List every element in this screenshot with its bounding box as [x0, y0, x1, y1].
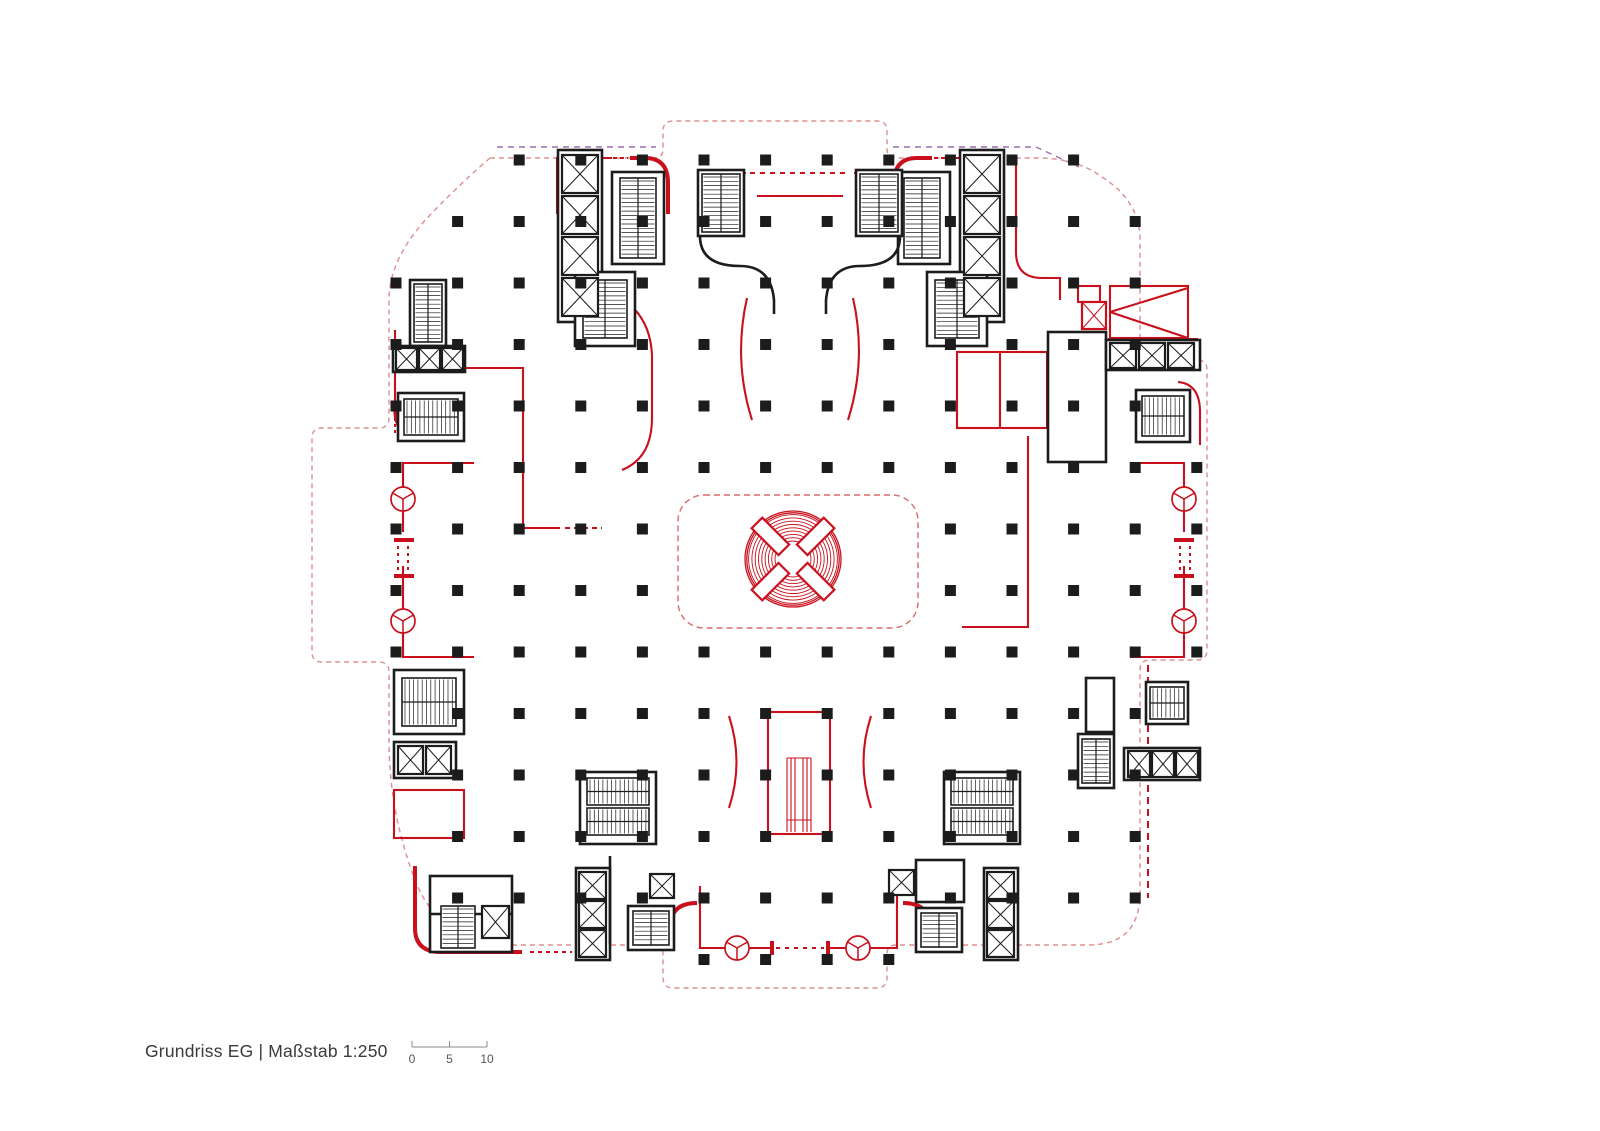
stair-run	[587, 778, 649, 805]
column	[637, 216, 648, 227]
column	[575, 155, 586, 166]
column	[699, 401, 710, 412]
column	[391, 647, 402, 658]
red-room-outline	[1078, 286, 1100, 302]
core-room-outline	[1086, 678, 1114, 732]
column	[699, 831, 710, 842]
column	[575, 401, 586, 412]
column	[1068, 216, 1079, 227]
column	[1130, 216, 1141, 227]
column	[1007, 401, 1018, 412]
scale-bar-label: 0	[409, 1052, 416, 1066]
column	[945, 647, 956, 658]
building-outline	[312, 121, 1207, 988]
column	[883, 831, 894, 842]
column	[514, 585, 525, 596]
column	[637, 831, 648, 842]
column	[1130, 278, 1141, 289]
column	[883, 339, 894, 350]
core-wall-path	[700, 236, 774, 314]
elevator-shaft	[562, 237, 598, 275]
floor-plan: 0510	[0, 0, 1600, 1131]
column	[822, 831, 833, 842]
column	[1130, 708, 1141, 719]
column	[1068, 278, 1079, 289]
column	[1130, 524, 1141, 535]
scale-bar: 0510	[409, 1041, 494, 1066]
column	[1130, 647, 1141, 658]
column	[1007, 831, 1018, 842]
column	[883, 216, 894, 227]
column	[575, 339, 586, 350]
column	[699, 770, 710, 781]
revolving-door	[846, 936, 870, 960]
column	[637, 585, 648, 596]
column	[945, 216, 956, 227]
column	[452, 524, 463, 535]
stair-run	[921, 913, 957, 947]
stair-run	[404, 399, 458, 435]
column	[822, 647, 833, 658]
column	[514, 401, 525, 412]
column	[883, 401, 894, 412]
column	[575, 647, 586, 658]
elevator-shaft	[964, 155, 1000, 193]
column	[945, 278, 956, 289]
column	[1068, 770, 1079, 781]
stair-run	[587, 808, 649, 835]
column	[1130, 462, 1141, 473]
elevator-shaft	[1139, 343, 1165, 368]
column	[760, 708, 771, 719]
column	[637, 647, 648, 658]
red-wall-path	[741, 298, 752, 420]
column	[1007, 524, 1018, 535]
column	[391, 339, 402, 350]
core-wall-path	[826, 236, 900, 314]
column	[760, 893, 771, 904]
column	[1130, 401, 1141, 412]
column	[1068, 339, 1079, 350]
column	[822, 708, 833, 719]
column	[945, 524, 956, 535]
column	[1191, 647, 1202, 658]
column	[883, 893, 894, 904]
red-wall-path	[729, 716, 737, 808]
elevator-shaft	[579, 901, 606, 928]
red-room-outline	[394, 790, 464, 838]
column	[391, 524, 402, 535]
column	[514, 339, 525, 350]
column	[637, 278, 648, 289]
elevator-shaft	[964, 278, 1000, 316]
column	[1007, 216, 1018, 227]
column	[637, 339, 648, 350]
column	[637, 462, 648, 473]
column	[883, 954, 894, 965]
column	[1068, 524, 1079, 535]
column	[637, 401, 648, 412]
column	[699, 954, 710, 965]
column	[1007, 339, 1018, 350]
red-wall-path	[1016, 158, 1060, 300]
column	[822, 401, 833, 412]
column	[1130, 770, 1141, 781]
column-grid	[391, 155, 1203, 966]
column	[452, 770, 463, 781]
column	[575, 831, 586, 842]
column	[760, 278, 771, 289]
column	[945, 831, 956, 842]
column	[883, 155, 894, 166]
column	[575, 585, 586, 596]
column	[452, 647, 463, 658]
red-wall-path	[462, 368, 560, 528]
red-room-outline	[957, 352, 1047, 428]
column	[1191, 585, 1202, 596]
column	[514, 708, 525, 719]
column	[699, 708, 710, 719]
column	[1068, 401, 1079, 412]
red-room-outline	[1110, 286, 1188, 338]
red-wall-path	[403, 566, 474, 657]
column	[699, 893, 710, 904]
column	[514, 278, 525, 289]
column	[452, 462, 463, 473]
red-wall-path	[1110, 312, 1188, 338]
elevator-shaft	[964, 196, 1000, 234]
drawing-title-label: Grundriss EG | Maßstab 1:250	[145, 1041, 388, 1062]
column	[637, 155, 648, 166]
column	[1191, 462, 1202, 473]
column	[452, 216, 463, 227]
column	[1130, 893, 1141, 904]
column	[760, 462, 771, 473]
column	[945, 770, 956, 781]
column	[452, 708, 463, 719]
elevator-shaft	[562, 196, 598, 234]
scale-bar-label: 5	[446, 1052, 453, 1066]
column	[1068, 893, 1079, 904]
column	[699, 462, 710, 473]
elevator-shaft	[398, 746, 423, 774]
elevator-shaft	[889, 870, 914, 895]
column	[1007, 893, 1018, 904]
column	[1007, 278, 1018, 289]
revolving-door	[1172, 609, 1196, 633]
stair-run	[951, 778, 1013, 805]
column	[514, 893, 525, 904]
elevator-shaft	[1082, 302, 1106, 329]
stair-run	[1150, 687, 1184, 719]
column	[1191, 524, 1202, 535]
stair-run	[1082, 739, 1110, 783]
column	[760, 401, 771, 412]
column	[1007, 155, 1018, 166]
elevator-shaft	[396, 348, 417, 370]
column	[760, 339, 771, 350]
column	[452, 831, 463, 842]
column	[452, 585, 463, 596]
column	[514, 155, 525, 166]
column	[945, 708, 956, 719]
column	[883, 770, 894, 781]
column	[699, 278, 710, 289]
column	[1068, 155, 1079, 166]
column	[514, 770, 525, 781]
column	[575, 893, 586, 904]
column	[945, 462, 956, 473]
red-wall-path	[962, 436, 1028, 627]
column	[514, 647, 525, 658]
elevator-shaft	[987, 901, 1014, 928]
column	[514, 462, 525, 473]
column	[760, 155, 771, 166]
revolving-door	[1172, 487, 1196, 511]
elevator-shaft	[419, 348, 440, 370]
column	[883, 462, 894, 473]
elevator-shaft	[1168, 343, 1194, 368]
column	[945, 893, 956, 904]
column	[637, 893, 648, 904]
column	[1068, 462, 1079, 473]
elevator-shaft	[426, 746, 451, 774]
column	[822, 770, 833, 781]
column	[514, 831, 525, 842]
column	[1130, 831, 1141, 842]
canopy-outline-path	[312, 121, 1207, 988]
column	[760, 831, 771, 842]
column	[822, 893, 833, 904]
column	[452, 278, 463, 289]
column	[1068, 647, 1079, 658]
column	[575, 216, 586, 227]
stair-run	[1142, 396, 1184, 436]
column	[822, 216, 833, 227]
column	[1007, 647, 1018, 658]
column	[391, 462, 402, 473]
stair-run	[402, 678, 456, 726]
column	[452, 339, 463, 350]
column	[1068, 585, 1079, 596]
elevator-shaft	[987, 930, 1014, 957]
column	[637, 770, 648, 781]
column	[883, 708, 894, 719]
red-wall-path	[848, 298, 859, 420]
column	[575, 770, 586, 781]
column	[1068, 831, 1079, 842]
elevator-shaft	[650, 874, 674, 898]
stair-run	[633, 911, 669, 945]
elevator-shaft	[1152, 751, 1174, 777]
column	[575, 524, 586, 535]
core-room-outline	[1048, 332, 1106, 462]
column	[945, 401, 956, 412]
column	[391, 585, 402, 596]
stair-run	[414, 284, 442, 342]
column	[1007, 708, 1018, 719]
stair-run	[904, 178, 940, 258]
column	[391, 278, 402, 289]
column	[822, 339, 833, 350]
column	[760, 216, 771, 227]
rotunda-stair	[745, 511, 841, 607]
column	[760, 770, 771, 781]
column	[1007, 585, 1018, 596]
column	[575, 462, 586, 473]
column	[822, 155, 833, 166]
elevator-shaft	[482, 906, 509, 938]
stair-run	[441, 906, 475, 948]
column	[452, 401, 463, 412]
elevator-shaft	[579, 930, 606, 957]
column	[699, 155, 710, 166]
red-room-outline	[768, 712, 830, 834]
drawing-sheet: 0510 Grundriss EG | Maßstab 1:250	[0, 0, 1600, 1131]
column	[822, 954, 833, 965]
column	[883, 278, 894, 289]
scale-bar-label: 10	[480, 1052, 494, 1066]
column	[575, 708, 586, 719]
column	[945, 155, 956, 166]
core-room-outline	[916, 860, 964, 902]
column	[514, 216, 525, 227]
column	[760, 954, 771, 965]
column	[822, 278, 833, 289]
column	[760, 647, 771, 658]
column	[391, 401, 402, 412]
column	[575, 278, 586, 289]
column	[883, 647, 894, 658]
column	[945, 339, 956, 350]
column	[822, 462, 833, 473]
column	[1130, 339, 1141, 350]
elevator-shaft	[1176, 751, 1198, 777]
column	[945, 585, 956, 596]
column	[699, 339, 710, 350]
column	[1007, 770, 1018, 781]
column	[637, 524, 648, 535]
revolving-door	[391, 487, 415, 511]
revolving-door	[391, 609, 415, 633]
elevator-shaft	[442, 348, 463, 370]
column	[699, 647, 710, 658]
column	[1130, 585, 1141, 596]
red-wall-path	[864, 716, 872, 808]
column	[1007, 462, 1018, 473]
column	[637, 708, 648, 719]
column	[514, 524, 525, 535]
column	[1068, 708, 1079, 719]
column	[699, 216, 710, 227]
elevator-shaft	[964, 237, 1000, 275]
red-wall-path	[1110, 288, 1188, 312]
revolving-door	[725, 936, 749, 960]
column	[452, 893, 463, 904]
stair-run	[951, 808, 1013, 835]
